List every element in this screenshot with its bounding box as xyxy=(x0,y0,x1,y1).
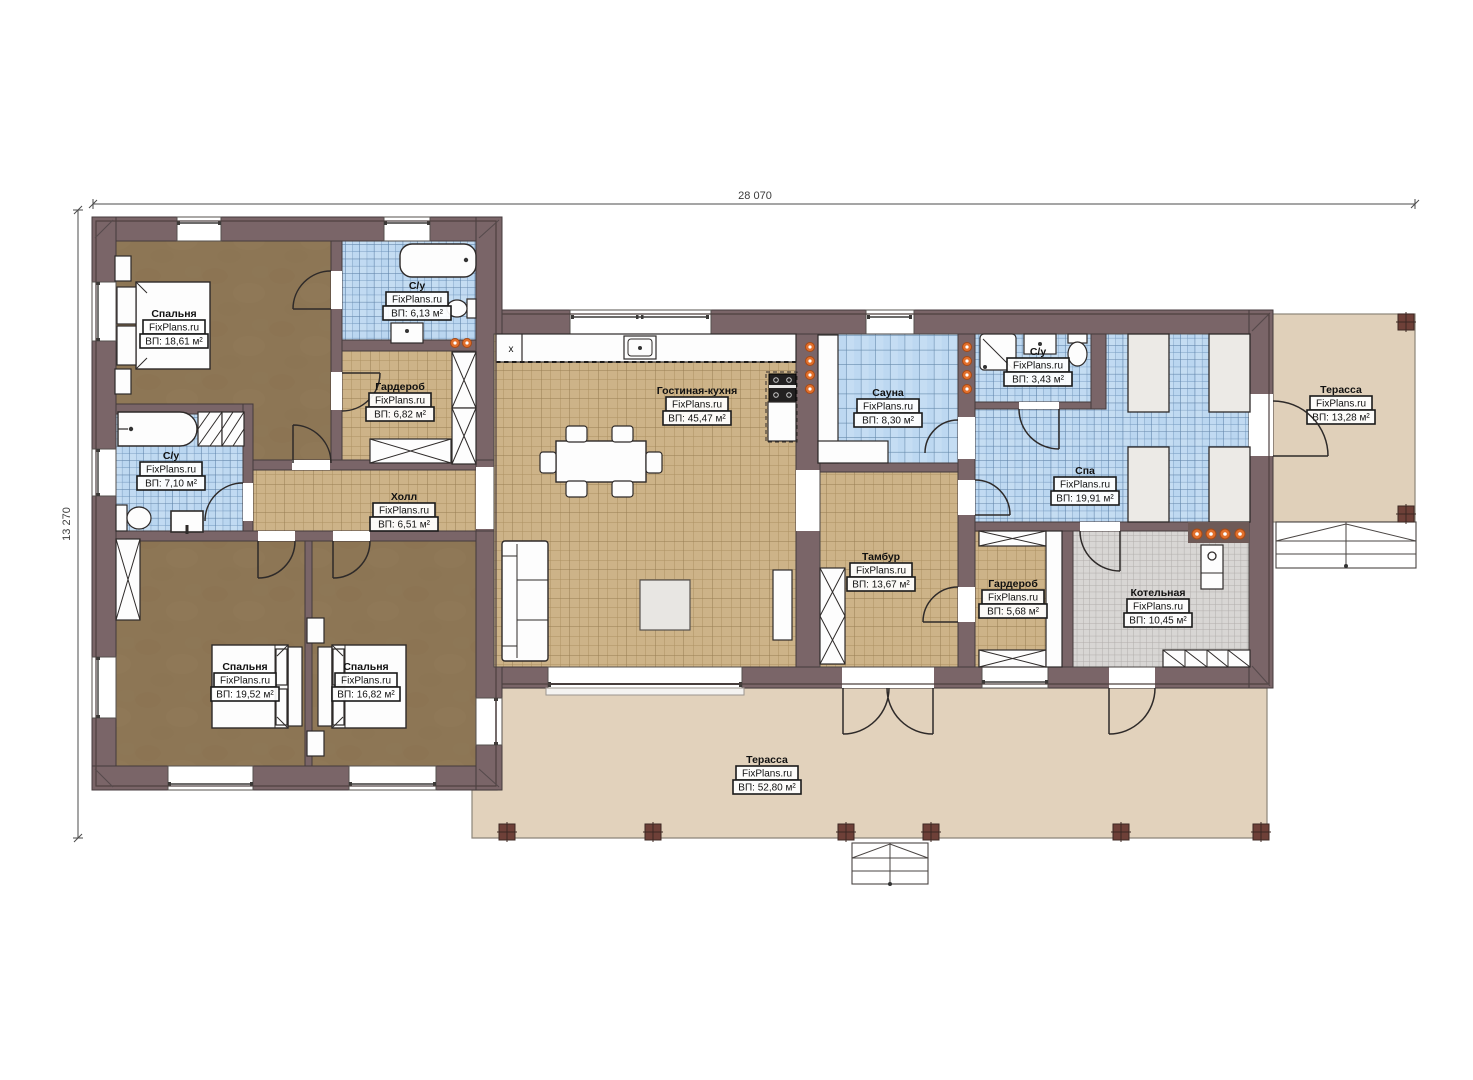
svg-text:Спальня: Спальня xyxy=(343,661,388,673)
svg-text:Сауна: Сауна xyxy=(872,387,904,399)
svg-text:FixPlans.ru: FixPlans.ru xyxy=(742,769,792,780)
svg-text:ВП: 6,82 м²: ВП: 6,82 м² xyxy=(374,410,427,421)
svg-text:13 270: 13 270 xyxy=(61,507,73,541)
svg-text:ВП: 3,43 м²: ВП: 3,43 м² xyxy=(1012,375,1065,386)
svg-text:FixPlans.ru: FixPlans.ru xyxy=(220,676,270,687)
svg-text:Холл: Холл xyxy=(391,491,417,503)
svg-text:Тамбур: Тамбур xyxy=(862,551,900,563)
svg-text:ВП: 52,80 м²: ВП: 52,80 м² xyxy=(738,783,796,794)
svg-text:Терасса: Терасса xyxy=(746,754,788,766)
svg-text:FixPlans.ru: FixPlans.ru xyxy=(1060,480,1110,491)
svg-text:Терасса: Терасса xyxy=(1320,384,1362,396)
svg-text:ВП: 19,52 м²: ВП: 19,52 м² xyxy=(216,690,274,701)
svg-text:Гардероб: Гардероб xyxy=(988,578,1038,590)
svg-text:FixPlans.ru: FixPlans.ru xyxy=(1013,361,1063,372)
svg-text:ВП: 10,45 м²: ВП: 10,45 м² xyxy=(1129,616,1187,627)
svg-text:FixPlans.ru: FixPlans.ru xyxy=(863,402,913,413)
svg-text:ВП: 8,30 м²: ВП: 8,30 м² xyxy=(862,416,915,427)
svg-text:x: x xyxy=(509,344,514,355)
svg-text:FixPlans.ru: FixPlans.ru xyxy=(392,295,442,306)
svg-text:ВП: 13,28 м²: ВП: 13,28 м² xyxy=(1312,413,1370,424)
svg-text:FixPlans.ru: FixPlans.ru xyxy=(379,506,429,517)
svg-text:ВП: 6,13 м²: ВП: 6,13 м² xyxy=(391,309,444,320)
svg-text:ВП: 19,91 м²: ВП: 19,91 м² xyxy=(1056,494,1114,505)
svg-text:FixPlans.ru: FixPlans.ru xyxy=(1316,399,1366,410)
svg-text:ВП: 16,82 м²: ВП: 16,82 м² xyxy=(337,690,395,701)
svg-text:Гостиная-кухня: Гостиная-кухня xyxy=(657,385,737,397)
svg-text:Котельная: Котельная xyxy=(1131,587,1186,599)
svg-text:С/у: С/у xyxy=(409,280,426,292)
svg-text:28 070: 28 070 xyxy=(738,190,772,202)
svg-text:FixPlans.ru: FixPlans.ru xyxy=(988,593,1038,604)
svg-text:FixPlans.ru: FixPlans.ru xyxy=(149,323,199,334)
svg-text:ВП: 5,68 м²: ВП: 5,68 м² xyxy=(987,607,1040,618)
svg-text:ВП: 13,67 м²: ВП: 13,67 м² xyxy=(852,580,910,591)
svg-text:ВП: 18,61 м²: ВП: 18,61 м² xyxy=(145,337,203,348)
svg-text:FixPlans.ru: FixPlans.ru xyxy=(856,566,906,577)
svg-text:С/у: С/у xyxy=(163,450,180,462)
svg-text:С/у: С/у xyxy=(1030,346,1047,358)
svg-text:FixPlans.ru: FixPlans.ru xyxy=(1133,602,1183,613)
svg-text:Спа: Спа xyxy=(1075,465,1095,477)
svg-text:FixPlans.ru: FixPlans.ru xyxy=(146,465,196,476)
svg-text:ВП: 7,10 м²: ВП: 7,10 м² xyxy=(145,479,198,490)
svg-text:Гардероб: Гардероб xyxy=(375,381,425,393)
svg-text:FixPlans.ru: FixPlans.ru xyxy=(341,676,391,687)
svg-text:Спальня: Спальня xyxy=(151,308,196,320)
svg-text:Спальня: Спальня xyxy=(222,661,267,673)
svg-text:ВП: 45,47 м²: ВП: 45,47 м² xyxy=(668,414,726,425)
svg-text:FixPlans.ru: FixPlans.ru xyxy=(672,400,722,411)
svg-text:ВП: 6,51 м²: ВП: 6,51 м² xyxy=(378,520,431,531)
svg-text:FixPlans.ru: FixPlans.ru xyxy=(375,396,425,407)
